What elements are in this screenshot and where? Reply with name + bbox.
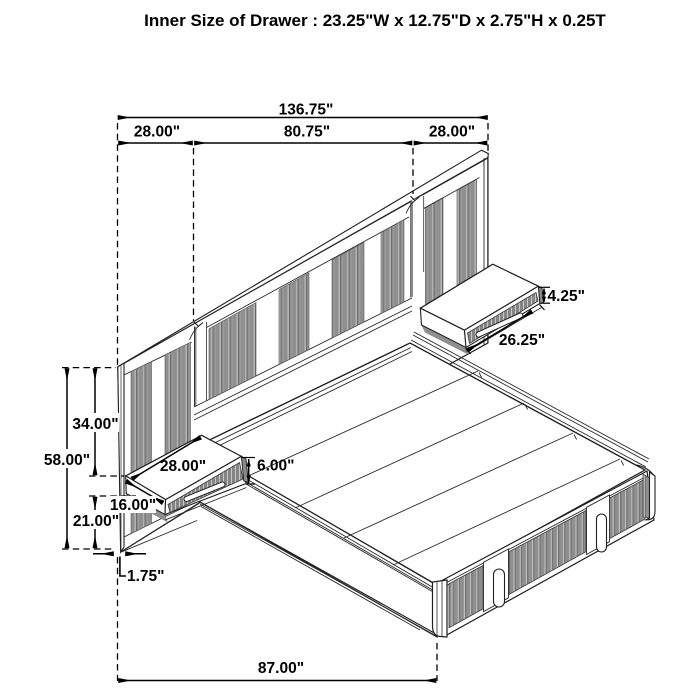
- svg-text:21.00": 21.00": [73, 513, 119, 530]
- svg-text:1.75": 1.75": [127, 568, 165, 585]
- svg-text:58.00": 58.00": [44, 452, 90, 469]
- svg-text:28.00": 28.00": [134, 124, 180, 141]
- svg-text:Inner Size of Drawer : 23.25"W: Inner Size of Drawer : 23.25"W x 12.75"D…: [144, 11, 606, 30]
- svg-text:28.00": 28.00": [429, 124, 475, 141]
- svg-text:80.75": 80.75": [284, 124, 330, 141]
- svg-text:6.00": 6.00": [257, 458, 295, 475]
- svg-text:4.25": 4.25": [548, 288, 586, 305]
- svg-text:16.00": 16.00": [110, 497, 156, 514]
- svg-text:34.00": 34.00": [72, 416, 118, 433]
- svg-text:87.00": 87.00": [258, 660, 304, 677]
- svg-text:136.75": 136.75": [279, 102, 334, 119]
- svg-text:28.00": 28.00": [160, 458, 206, 475]
- svg-text:26.25": 26.25": [499, 332, 545, 349]
